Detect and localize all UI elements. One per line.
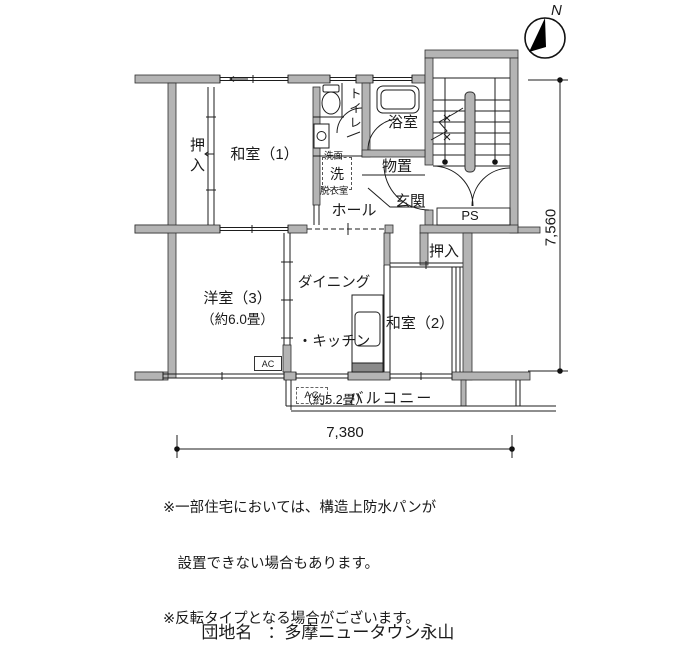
room-label-closet1: 押入 xyxy=(186,137,207,177)
dimension-vertical: 7,560 xyxy=(543,183,560,273)
note-line: ※一部住宅においては、構造上防水パンが xyxy=(163,499,464,518)
property-info-block: 団地名：多摩ニュータウン永山 型 式：3DK タイプ：E2-Ⅲ 図面No：202… xyxy=(173,556,454,650)
room-label-western3-size: （約6.0畳） xyxy=(189,308,286,328)
room-label-bath: 浴室 xyxy=(382,111,424,132)
info-row-name: 団地名：多摩ニュータウン永山 xyxy=(173,600,454,650)
room-label-balcony: バルコニー xyxy=(345,387,437,408)
room-label-genkan: 玄関 xyxy=(388,190,432,211)
toilet-bowl-icon xyxy=(322,92,340,114)
stairs-group xyxy=(431,78,510,225)
room-label-hall: ホール xyxy=(327,199,381,220)
room-label-dining-line2: ・キッチン xyxy=(290,333,378,353)
info-value: 多摩ニュータウン永山 xyxy=(284,623,454,642)
ac-outdoor-label: AC xyxy=(304,390,319,401)
north-arrow-icon xyxy=(525,18,565,58)
info-label: 団地名 xyxy=(201,622,267,644)
toilet-icon xyxy=(323,85,339,92)
room-label-washitsu1: 和室（1） xyxy=(216,143,313,164)
room-label-storage: 物置 xyxy=(372,155,422,176)
room-label-western3: 洋室（3） xyxy=(189,287,286,308)
room-label-laundry: 洗 xyxy=(330,164,344,184)
laundry-pan-box: 洗 xyxy=(322,157,352,190)
ac-indoor-box: AC xyxy=(254,356,282,371)
north-label: N xyxy=(551,2,562,19)
ac-indoor-label: AC xyxy=(262,359,275,369)
room-label-toilet: トイレ xyxy=(345,87,364,131)
room-label-ps: PS xyxy=(452,208,488,223)
room-label-closet2: 押入 xyxy=(424,240,464,261)
floorplan-page: N 7,560 7,380 押入 和室（1） トイレ 洗面 脱衣室 洗 浴室 物… xyxy=(0,0,700,650)
room-label-washitsu2: 和室（2） xyxy=(384,312,456,333)
room-label-dining-kitchen: ダイニング ・キッチン （約5.2畳） xyxy=(290,235,378,450)
room-label-dining-line1: ダイニング xyxy=(290,274,378,294)
info-colon: ： xyxy=(267,623,284,642)
ac-outdoor-box: AC xyxy=(296,387,328,404)
